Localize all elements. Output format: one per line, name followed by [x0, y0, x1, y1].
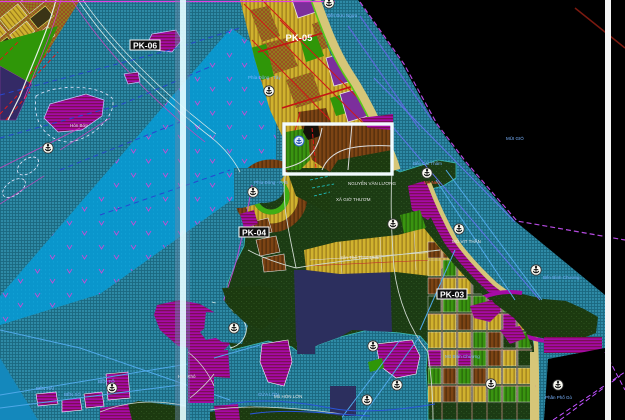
svg-text:Phần Phố Gò: Phần Phố Gò	[545, 395, 573, 400]
svg-text:BẾN TỔ: BẾN TỔ	[98, 378, 115, 384]
svg-text:Phía Đông - PK5: Phía Đông - PK5	[254, 180, 288, 185]
svg-text:Hòn Khô: Hòn Khô	[178, 374, 196, 379]
svg-text:Sân Thể Thao Quần: Sân Thể Thao Quần	[340, 254, 381, 260]
svg-text:MỎ VỊT THẦN: MỎ VỊT THẦN	[452, 238, 481, 244]
svg-text:MŨI GIÓ: MŨI GIÓ	[506, 135, 524, 141]
svg-text:NGUYỄN VĂN LƯƠNG: NGUYỄN VĂN LƯƠNG	[348, 180, 396, 186]
svg-text:BẾN SÒ: BẾN SÒ	[64, 391, 82, 397]
svg-text:Bến Bình Chương: Bến Bình Chương	[543, 275, 580, 280]
svg-text:Mỏ HÒN LỚN: Mỏ HÒN LỚN	[274, 393, 302, 399]
svg-text:XÃ GIỜ THƯƠM: XÃ GIỜ THƯƠM	[336, 196, 371, 202]
svg-text:Hòn Bớp: Hòn Bớp	[70, 123, 88, 128]
svg-text:Phía Đông - Tây: Phía Đông - Tây	[248, 75, 281, 80]
svg-text:PK-06: PK-06	[133, 41, 157, 51]
svg-text:Bến Bưu Ngựa: Bến Bưu Ngựa	[327, 13, 358, 18]
svg-text:Bến Cát Thẩm: Bến Cát Thẩm	[413, 160, 442, 166]
svg-text:Mỏ Bình Chương: Mỏ Bình Chương	[445, 353, 480, 359]
svg-text:BẾN HẢI: BẾN HẢI	[36, 385, 54, 391]
svg-text:Mỏ Neo: Mỏ Neo	[424, 179, 440, 185]
svg-text:PK-05: PK-05	[286, 33, 314, 44]
svg-text:PK-04: PK-04	[242, 228, 266, 238]
svg-text:PK-03: PK-03	[440, 290, 464, 300]
